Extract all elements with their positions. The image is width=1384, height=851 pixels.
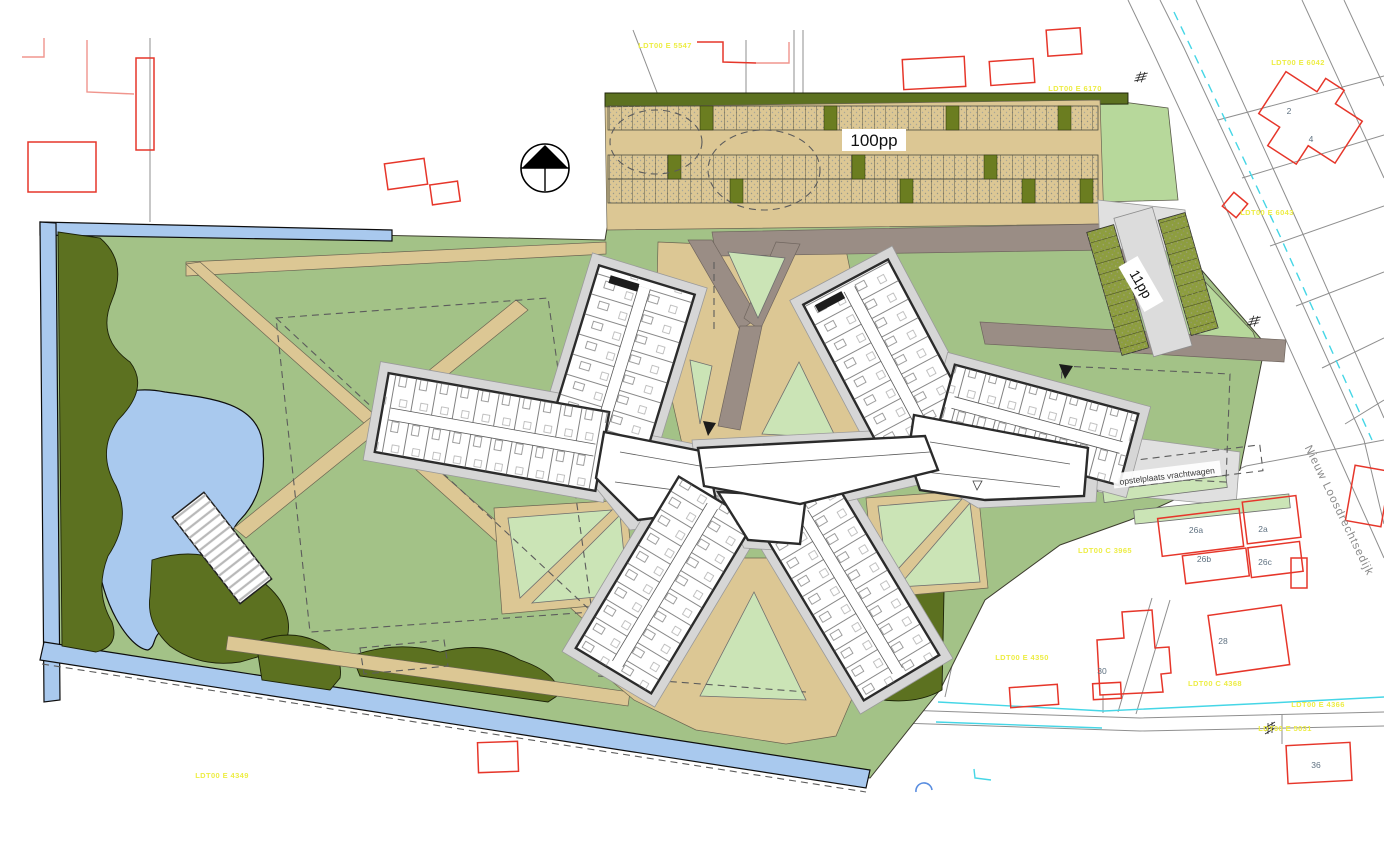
house-number: 2: [1287, 106, 1292, 116]
house-number: 26c: [1258, 557, 1272, 567]
cadastral-label: LDT00 E 4350: [995, 653, 1049, 662]
cadastral-label: LDT00 C 4368: [1188, 679, 1242, 688]
parking-capacity-label: 100pp: [850, 131, 897, 150]
north-arrow-icon: [521, 144, 569, 192]
cadastral-label: LDT00 E 5031: [1258, 724, 1312, 733]
cadastral-label: LDT00 E 5547: [638, 41, 692, 50]
cadastral-label: LDT00 E 6043: [1240, 208, 1294, 217]
site-plan-page: 100pp 11pp opstelplaats vrachtwagen Nieu…: [0, 0, 1384, 851]
parking-lot: [605, 100, 1104, 230]
cadastral-label: LDT00 E 6170: [1048, 84, 1102, 93]
cadastral-label: LDT00 E 6042: [1271, 58, 1325, 67]
house-number: 28: [1218, 636, 1228, 646]
house-number: 26a: [1189, 525, 1203, 535]
cadastral-label: LDT00 C 3965: [1078, 546, 1132, 555]
cadastral-label: LDT00 E 4349: [195, 771, 249, 780]
ditch-west: [40, 222, 60, 702]
house-number: 30: [1097, 666, 1107, 676]
site-plan-canvas: 100pp 11pp opstelplaats vrachtwagen Nieu…: [0, 0, 1384, 851]
house-number: 4: [1309, 134, 1314, 144]
house-number: 2a: [1258, 524, 1268, 534]
house-number: 36: [1311, 760, 1321, 770]
house-number: 26b: [1197, 554, 1211, 564]
cadastral-label: LDT00 E 4366: [1291, 700, 1345, 709]
